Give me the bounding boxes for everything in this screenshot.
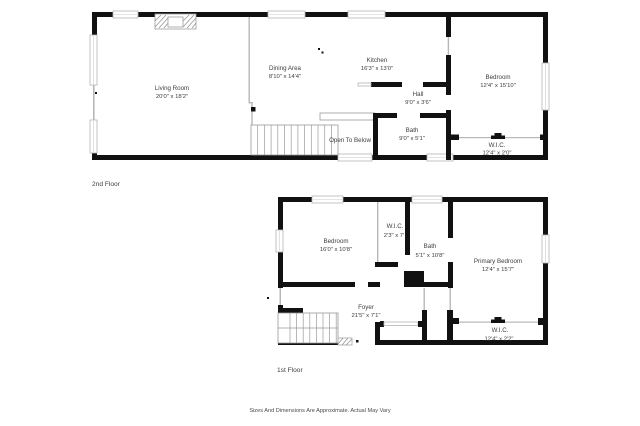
room-label-wic-2nd: W.I.C. xyxy=(489,142,506,149)
wall-post xyxy=(251,107,256,112)
room-label-wic-1st: W.I.C. xyxy=(492,327,509,334)
room-dims-wic-1st: 12'4" x 2'2" xyxy=(484,337,513,343)
chimney-icon xyxy=(404,271,424,287)
closet-door-icon xyxy=(491,133,505,139)
room-label-living: Living Room xyxy=(155,85,189,92)
room-dims-living: 20'0" x 18'2" xyxy=(156,94,188,100)
room-dims-bath-2nd: 9'0" x 5'1" xyxy=(399,136,425,142)
room-label-bath-1st: Bath xyxy=(424,243,437,250)
window-icon xyxy=(276,196,549,263)
room-dims-primary: 12'4" x 15'7" xyxy=(482,267,514,273)
floorplan-svg: Living Room 20'0" x 18'2" Dining Area 8'… xyxy=(0,0,640,426)
room-label-hall: Hall xyxy=(413,91,424,98)
floor-label-2nd: 2nd Floor xyxy=(92,181,121,188)
stairs-1st-icon xyxy=(278,313,338,343)
floor-plan-2nd: Living Room 20'0" x 18'2" Dining Area 8'… xyxy=(90,11,549,188)
room-dims-kitchen: 16'3" x 13'0" xyxy=(361,66,393,72)
room-label-primary: Primary Bedroom xyxy=(474,258,522,265)
room-label-wic-small: W.I.C. xyxy=(387,223,404,230)
open-to-below-label: Open To Below xyxy=(329,137,371,144)
step-hatch-icon xyxy=(338,338,352,345)
room-dims-dining: 8'10" x 14'4" xyxy=(269,74,301,80)
landing-rail xyxy=(320,113,375,120)
room-label-bedroom-2nd: Bedroom xyxy=(485,74,510,81)
fireplace-icon xyxy=(155,14,196,29)
room-dims-bedroom-2nd: 12'4" x 15'10" xyxy=(480,83,516,89)
room-label-dining: Dining Area xyxy=(269,65,302,72)
room-dims-bedroom-1st: 16'0" x 10'8" xyxy=(320,247,352,253)
room-label-kitchen: Kitchen xyxy=(367,57,388,64)
room-dims-hall: 9'0" x 3'6" xyxy=(405,100,431,106)
disclaimer-text: Sizes And Dimensions Are Approximate. Ac… xyxy=(249,408,391,414)
room-label-foyer: Foyer xyxy=(358,304,374,311)
floorplan-image: Living Room 20'0" x 18'2" Dining Area 8'… xyxy=(0,0,640,426)
closet-door-icon xyxy=(491,317,505,323)
wic-divider-1st xyxy=(452,317,548,325)
room-dims-wic-2nd: 12'4" x 2'0" xyxy=(482,151,511,157)
room-label-bedroom-1st: Bedroom xyxy=(323,238,348,245)
stairs-2nd-icon xyxy=(251,113,375,155)
room-dims-bath-1st: 5'1" x 10'8" xyxy=(415,253,444,259)
room-dims-foyer: 21'5" x 7'1" xyxy=(351,313,380,319)
wic-divider-2nd xyxy=(451,133,548,140)
entry-nook xyxy=(375,288,427,340)
room-dims-wic-small: 2'3" x 7' xyxy=(384,233,404,239)
room-label-bath-2nd: Bath xyxy=(406,127,419,134)
floor-label-1st: 1st Floor xyxy=(277,367,303,374)
partition-living-dining xyxy=(249,17,256,125)
floor-plan-1st: Bedroom 16'0" x 10'8" W.I.C. 2'3" x 7' B… xyxy=(267,196,549,374)
